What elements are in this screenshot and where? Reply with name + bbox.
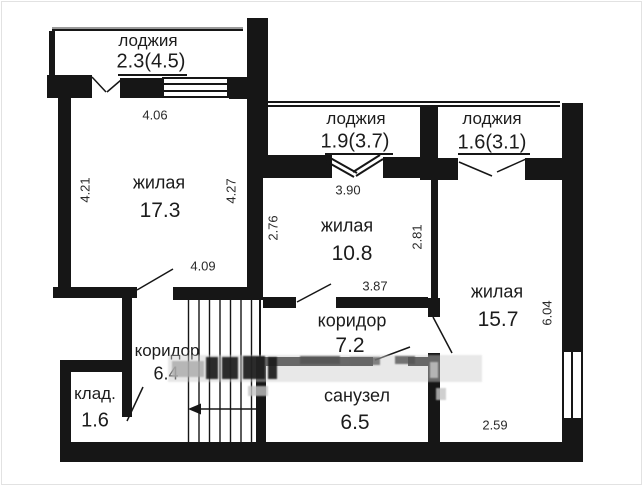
room-name-label: клад. (74, 384, 116, 404)
watermark-block (172, 361, 204, 377)
watermark-block (350, 357, 380, 365)
loggia-railing-top (268, 101, 560, 103)
dimension-label: 4.21 (78, 177, 93, 202)
wall-segment (263, 297, 296, 308)
loggia-railing-left (49, 31, 55, 75)
wall-segment (229, 77, 247, 99)
window-glass-line (164, 90, 227, 92)
wall-segment (60, 442, 583, 462)
loggia-railing-top (268, 105, 560, 107)
watermark-block (430, 362, 438, 378)
room-area-label: 10.8 (332, 242, 373, 266)
room-area-label: 1.6 (81, 410, 109, 433)
wall-segment (431, 180, 438, 300)
wall-segment (53, 287, 137, 298)
window-glass-line (571, 351, 573, 419)
wall-segment (247, 155, 332, 178)
dimension-label: 2.76 (266, 215, 281, 240)
room-name-label: санузел (324, 386, 390, 407)
wall-segment (336, 297, 428, 308)
dimension-label: 4.27 (224, 178, 239, 203)
stair-edge-line (259, 300, 261, 357)
room-name-label: лоджия (462, 109, 521, 129)
window-symbol (162, 77, 229, 98)
watermark-block (206, 357, 218, 379)
wall-segment (525, 158, 562, 180)
dimension-label: 3.87 (362, 279, 387, 294)
wall-segment (173, 287, 263, 300)
area-underline (118, 74, 187, 76)
watermark-block (300, 356, 340, 364)
room-area-label: 6.5 (340, 411, 369, 435)
room-name-label: лоджия (326, 109, 385, 129)
wall-segment (120, 78, 162, 98)
room-area-label: 1.9(3.7) (321, 131, 390, 154)
watermark-block (222, 357, 238, 379)
watermark-block (395, 356, 415, 364)
dimension-label: 4.06 (142, 108, 167, 123)
wall-segment (428, 298, 440, 317)
room-area-label: 1.6(3.1) (458, 132, 527, 155)
room-name-label: коридор (318, 311, 387, 332)
wall-segment (247, 178, 263, 300)
room-name-label: жилая (133, 173, 185, 194)
room-name-label: жилая (471, 282, 523, 303)
dimension-label: 2.59 (482, 418, 507, 433)
dimension-label: 3.90 (335, 183, 360, 198)
wall-segment (247, 18, 268, 158)
floor-plan: лоджия 2.3(4.5) лоджия 1.9(3.7) лоджия 1… (0, 0, 643, 486)
room-area-label: 15.7 (478, 308, 519, 332)
wall-segment (383, 157, 420, 178)
watermark-block (243, 356, 265, 379)
room-name-label: лоджия (118, 31, 177, 51)
wall-segment (562, 103, 583, 350)
watermark-block (436, 388, 446, 400)
room-name-label: жилая (321, 216, 373, 237)
room-area-label: 17.3 (140, 199, 181, 223)
wall-segment (122, 298, 132, 417)
watermark-block (248, 386, 268, 396)
window-glass-line (164, 83, 227, 85)
room-area-label: 2.3(4.5) (117, 51, 186, 74)
wall-segment (420, 158, 458, 180)
watermark-block (268, 357, 277, 379)
wall-segment (58, 75, 71, 288)
dimension-label: 4.09 (190, 259, 215, 274)
dimension-label: 2.81 (410, 224, 425, 249)
dimension-label: 6.04 (540, 300, 555, 325)
wall-segment (420, 107, 438, 158)
